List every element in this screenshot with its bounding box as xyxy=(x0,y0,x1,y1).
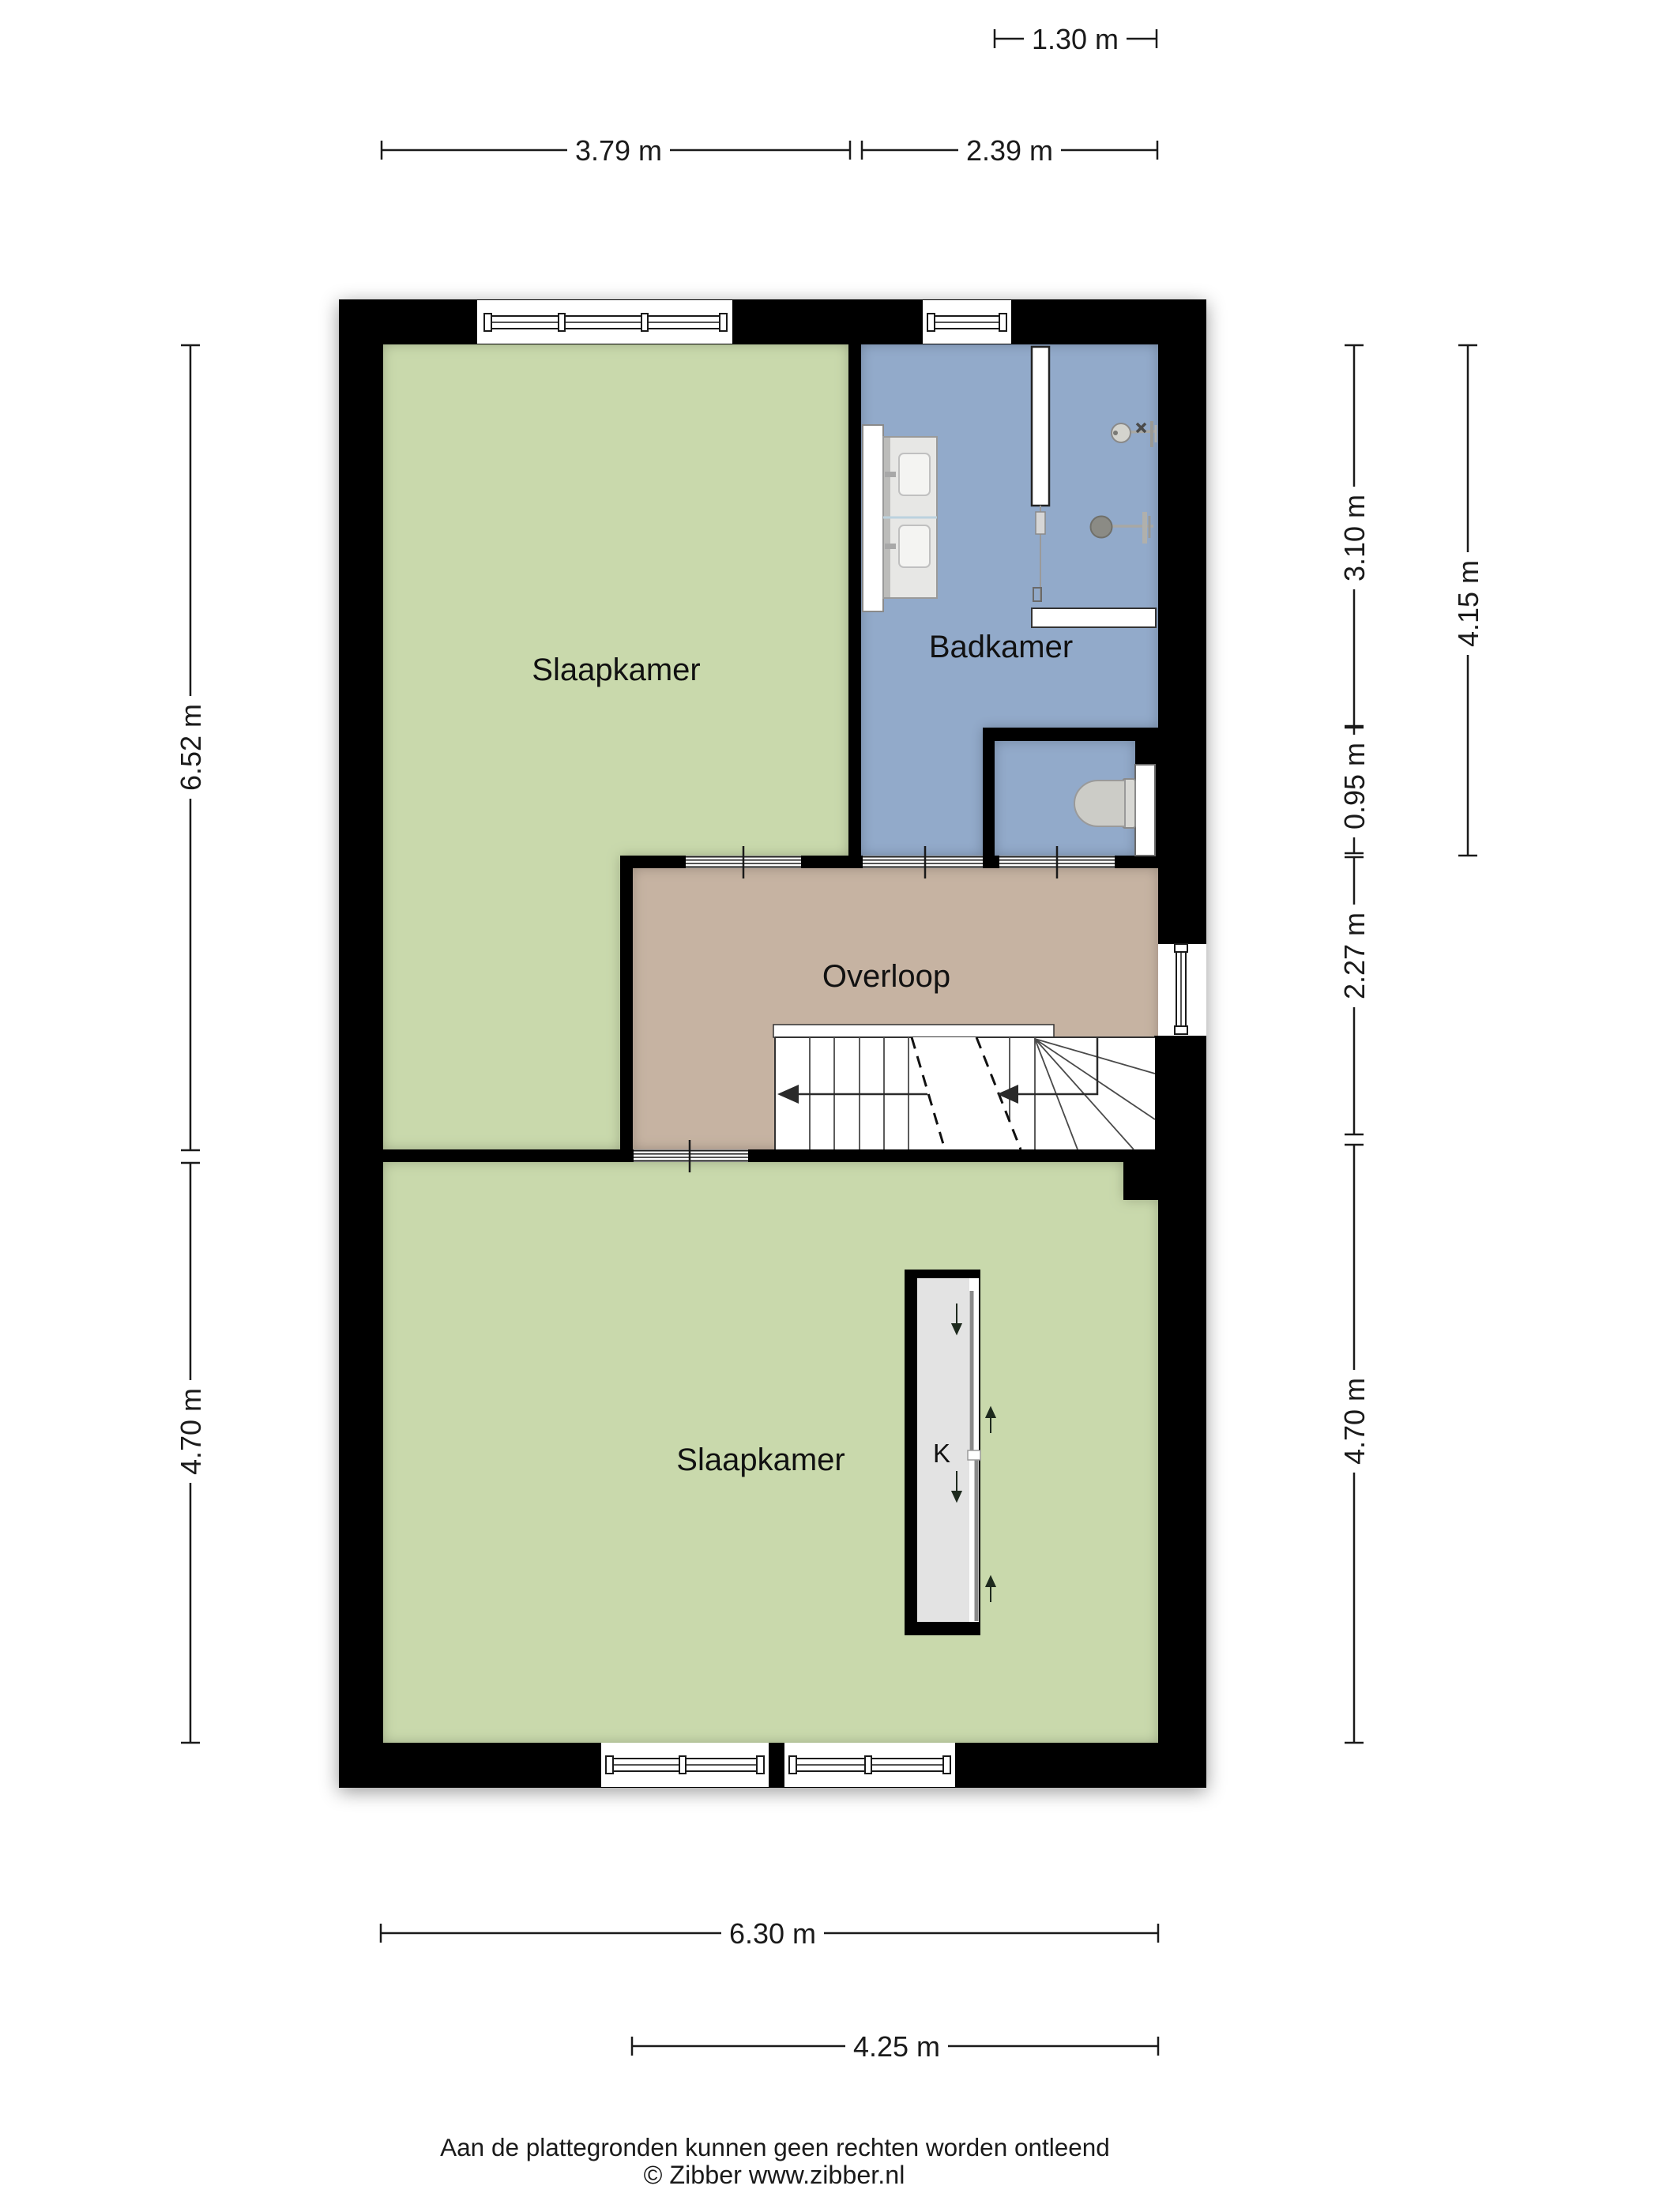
svg-text:3.10 m: 3.10 m xyxy=(1338,495,1371,581)
svg-text:Overloop: Overloop xyxy=(822,959,950,994)
svg-text:3.79 m: 3.79 m xyxy=(575,134,662,167)
svg-text:6.30 m: 6.30 m xyxy=(729,1917,816,1950)
svg-text:4.70 m: 4.70 m xyxy=(175,1388,207,1475)
svg-text:Badkamer: Badkamer xyxy=(929,630,1073,664)
svg-text:4.70 m: 4.70 m xyxy=(1338,1378,1371,1465)
svg-text:1.30 m: 1.30 m xyxy=(1032,23,1119,55)
svg-text:4.25 m: 4.25 m xyxy=(853,2030,940,2063)
svg-text:© Zibber www.zibber.nl: © Zibber www.zibber.nl xyxy=(644,2161,905,2189)
svg-text:2.27 m: 2.27 m xyxy=(1338,912,1371,999)
svg-text:Slaapkamer: Slaapkamer xyxy=(676,1443,845,1477)
svg-text:2.39 m: 2.39 m xyxy=(966,134,1053,167)
svg-text:Slaapkamer: Slaapkamer xyxy=(532,653,700,687)
svg-text:Aan de plattegronden kunnen ge: Aan de plattegronden kunnen geen rechten… xyxy=(440,2133,1110,2161)
svg-text:0.95 m: 0.95 m xyxy=(1338,743,1371,829)
svg-text:K: K xyxy=(933,1439,950,1468)
svg-text:6.52 m: 6.52 m xyxy=(175,704,207,791)
svg-text:4.15 m: 4.15 m xyxy=(1452,560,1484,647)
